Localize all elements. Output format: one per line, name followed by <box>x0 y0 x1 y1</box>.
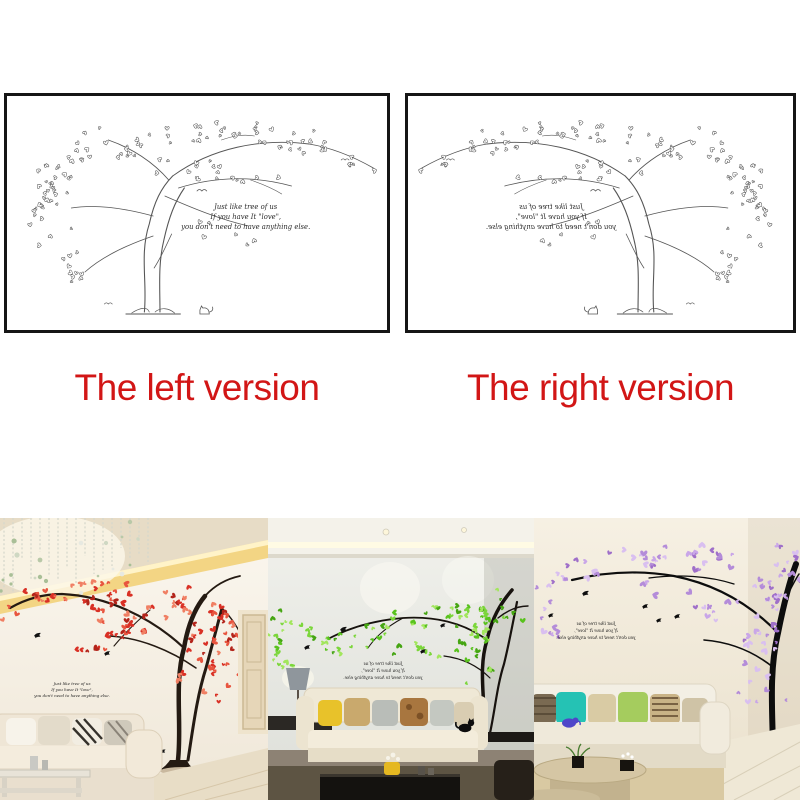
quote-line-1: Just like tree of us <box>212 203 278 211</box>
right-version-line-art <box>408 96 793 330</box>
left-version-panel: Just like tree of us If you have It "lov… <box>4 93 390 333</box>
pillow <box>372 700 398 726</box>
sofa <box>296 688 488 762</box>
pillow <box>534 694 556 724</box>
quote-line-2: If you have It "love", <box>574 628 619 633</box>
caption-right-version: The right version <box>405 364 796 412</box>
spotlight-icon <box>462 528 467 533</box>
door <box>243 615 265 729</box>
table-decor <box>418 766 425 775</box>
table-decor <box>42 760 48 770</box>
pillow <box>318 700 342 726</box>
quote-line-2: If you have It "love", <box>209 213 281 221</box>
armchair-corner <box>494 760 534 800</box>
flowers <box>386 756 390 760</box>
pillow <box>588 694 616 724</box>
leaf-cluster <box>28 120 378 283</box>
quote-line-3: you don't need to have anything else. <box>33 693 110 698</box>
table-decor <box>428 768 434 775</box>
flowers <box>391 753 396 758</box>
quote-line-1: Just like tree of us <box>52 681 90 686</box>
pillow <box>38 716 70 745</box>
caption-left-version: The left version <box>4 364 390 412</box>
ceiling-edge <box>268 554 534 558</box>
red-tree-room-photo: Just like tree of us If you have It "lov… <box>0 518 268 800</box>
pillow <box>72 718 102 745</box>
ceiling-light-strip <box>268 542 534 548</box>
wall-light-pool <box>360 562 420 614</box>
quote-line-3: you don't need to have anything else. <box>180 223 310 231</box>
room-photo-strip: Just like tree of us If you have It "lov… <box>0 518 800 800</box>
quote-line-1: Just like tree of us <box>364 661 404 666</box>
pillow <box>618 692 648 724</box>
diagram-quote-decal: Just like tree of us If you have It "lov… <box>180 203 310 231</box>
pillow <box>430 700 454 726</box>
ceiling <box>268 518 534 558</box>
pillow <box>400 698 428 726</box>
product-image-sheet: Just like tree of us If you have It "lov… <box>0 0 800 800</box>
tree-line-art: Just like tree of us If you have It "lov… <box>28 120 378 314</box>
pillow <box>650 694 680 724</box>
table-decor <box>30 756 38 770</box>
quote-line-3: you don't need to have anything else. <box>556 635 636 640</box>
pillow <box>344 698 370 726</box>
cat-icon <box>200 306 213 314</box>
flowers <box>396 757 400 761</box>
green-tree-room-photo: Just like tree of us If you have It "lov… <box>268 518 534 800</box>
quote-line-1: Just like tree of us <box>577 621 617 626</box>
pillow <box>6 718 36 745</box>
quote-line-2: If you have It "love", <box>50 687 92 692</box>
bird-icon <box>104 159 349 304</box>
quote-line-2: If you have It "love", <box>361 668 406 673</box>
purple-tree-room-photo: Just like tree of us If you have It "lov… <box>534 518 800 800</box>
vase <box>384 762 400 775</box>
left-version-line-art: Just like tree of us If you have It "lov… <box>7 96 387 330</box>
right-version-panel <box>405 93 796 333</box>
quote-line-3: you don't need to have anything else. <box>343 675 423 680</box>
spotlight-icon <box>383 529 389 535</box>
